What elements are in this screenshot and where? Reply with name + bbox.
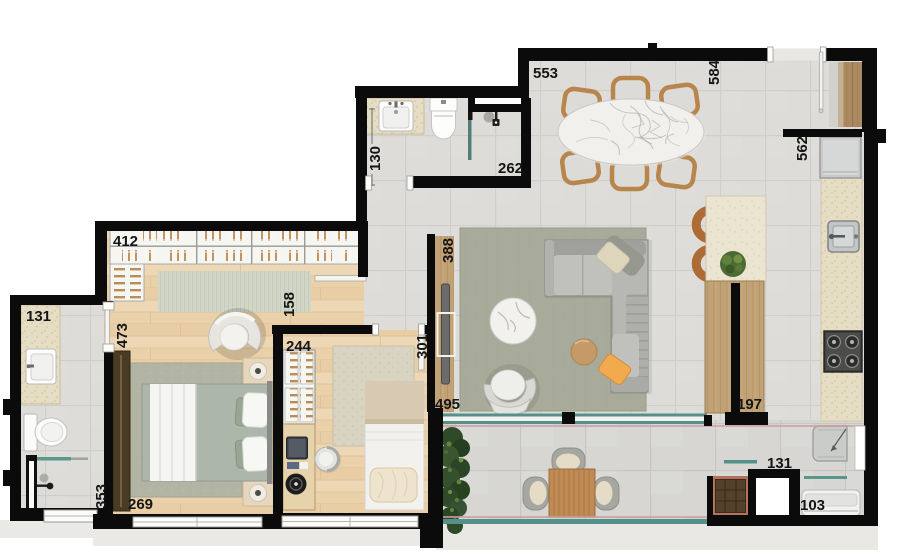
svg-text:353: 353 bbox=[93, 484, 110, 509]
svg-text:197: 197 bbox=[737, 396, 762, 413]
svg-text:158: 158 bbox=[281, 292, 298, 317]
svg-text:262: 262 bbox=[498, 160, 523, 177]
svg-text:131: 131 bbox=[26, 308, 51, 325]
svg-text:130: 130 bbox=[367, 146, 384, 171]
svg-text:473: 473 bbox=[114, 323, 131, 348]
svg-text:131: 131 bbox=[767, 455, 792, 472]
svg-text:553: 553 bbox=[533, 65, 558, 82]
svg-text:301: 301 bbox=[414, 334, 431, 359]
svg-text:495: 495 bbox=[435, 396, 460, 413]
svg-text:103: 103 bbox=[800, 497, 825, 514]
svg-text:388: 388 bbox=[440, 238, 457, 263]
svg-text:584: 584 bbox=[706, 59, 723, 85]
svg-text:412: 412 bbox=[113, 233, 138, 250]
svg-text:269: 269 bbox=[128, 496, 153, 513]
svg-text:244: 244 bbox=[286, 338, 312, 355]
svg-text:562: 562 bbox=[794, 136, 811, 161]
